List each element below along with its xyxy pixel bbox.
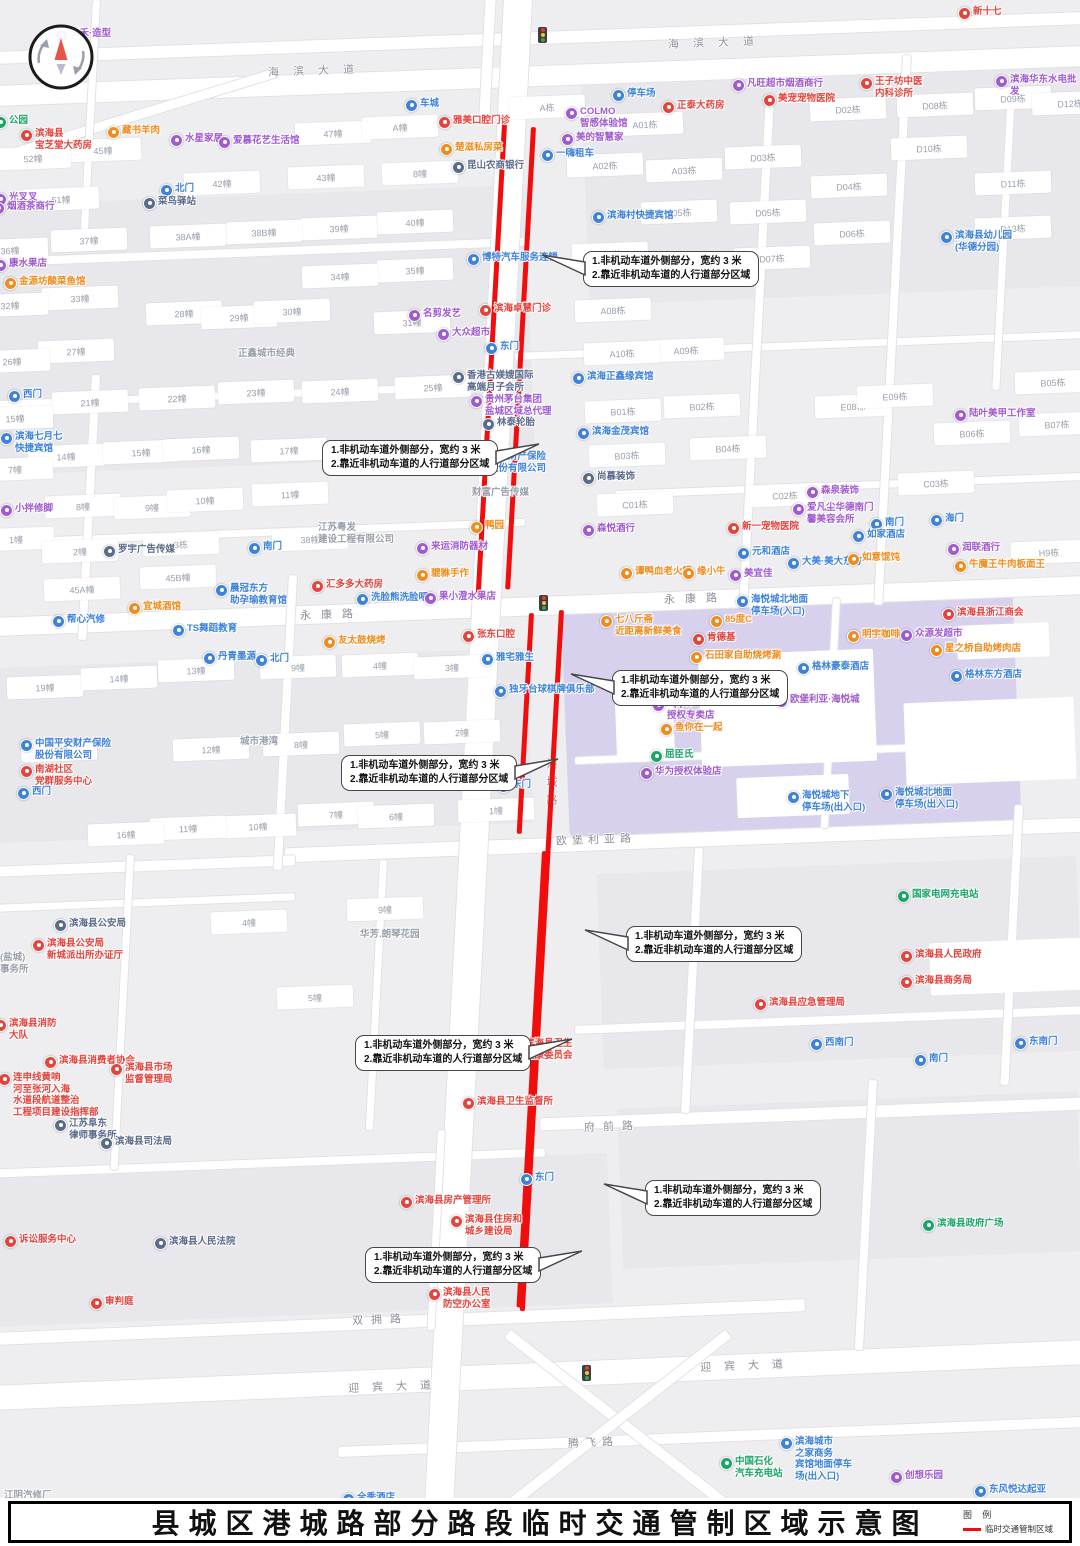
poi-label: 创想乐园 xyxy=(905,1470,943,1482)
callout-bubble: 1.非机动车道外侧部分，宽约 3 米2.靠近非机动车道的人行道部分区域 xyxy=(322,440,498,476)
poi-label: 东南门 xyxy=(1029,1036,1058,1048)
poi[interactable]: 罗宇广告传媒 xyxy=(103,544,175,558)
poi-icon-dot xyxy=(905,954,909,958)
poi-icon xyxy=(494,685,507,698)
building-label: A03栋 xyxy=(646,158,723,183)
poi-icon-dot xyxy=(857,534,861,538)
poi-icon xyxy=(128,602,141,615)
poi[interactable]: 江苏粤发 建设工程有限公司 xyxy=(318,522,394,545)
building-label: B02栋 xyxy=(664,394,741,419)
poi-icon xyxy=(467,253,480,266)
poi-icon-dot xyxy=(582,431,586,435)
poi[interactable]: 七八斤斋 近距离新鲜美食 xyxy=(600,614,682,637)
building-label: 6幢 xyxy=(358,804,435,829)
poi-icon xyxy=(930,644,943,657)
poi[interactable]: 森泉装饰 xyxy=(806,485,859,499)
poi[interactable]: 滨海县公安局 新城派出所办证厅 xyxy=(32,938,123,961)
poi[interactable]: 车城 xyxy=(405,98,439,112)
poi[interactable]: 水星家居 xyxy=(170,133,223,147)
legend-item-label: 临时交通管制区域 xyxy=(985,1523,1053,1535)
building-label: 45B幢 xyxy=(140,565,217,590)
poi-icon-dot xyxy=(148,201,152,205)
poi-label: 南门 xyxy=(929,1053,948,1065)
poi[interactable]: 陆叶美甲工作室 xyxy=(954,408,1036,422)
poi[interactable]: 雅宅雅生 xyxy=(481,652,534,666)
poi-icon xyxy=(437,328,450,341)
poi-icon xyxy=(950,670,963,683)
poi[interactable]: 财富广告传媒 xyxy=(472,487,529,499)
poi-icon xyxy=(852,530,865,543)
road-strip xyxy=(0,1340,1080,1410)
poi[interactable]: 海门 xyxy=(930,513,964,527)
poi[interactable]: 贵州茅台集团 盐城区域总代理 xyxy=(470,394,552,417)
poi[interactable]: 中国平安财产保险 股份有限公司 xyxy=(20,738,111,761)
poi-label: 陆叶美甲工作室 xyxy=(969,408,1036,420)
poi-icon xyxy=(170,134,183,147)
poi-icon-dot xyxy=(177,628,181,632)
poi[interactable]: 滨海县住房和 城乡建设局 xyxy=(450,1214,522,1237)
poi-icon-dot xyxy=(734,573,738,577)
poi-icon xyxy=(4,1235,17,1248)
poi-icon xyxy=(520,1173,533,1186)
poi[interactable]: 滨海县 宝芝堂大药房 xyxy=(20,128,92,151)
poi-icon xyxy=(787,791,800,804)
poi[interactable]: 明宇咖啡 xyxy=(847,629,900,643)
poi[interactable]: 滨海城市 之家商务 宾馆地面停车 场(出入口) xyxy=(780,1436,852,1482)
poi[interactable]: 滨海金茂宾馆 xyxy=(577,426,649,440)
poi[interactable]: 滨海县人民政府 xyxy=(900,949,982,963)
poi-icon-dot xyxy=(220,588,224,592)
poi-label: 香港古媄嫂国际 高端月子会所 xyxy=(467,370,534,393)
poi-label: 格林东方酒店 xyxy=(965,669,1022,681)
poi[interactable]: 香港古媄嫂国际 高端月子会所 xyxy=(452,370,534,393)
poi[interactable]: 爱凡尘华德南门 馨美容会所 xyxy=(792,502,874,525)
poi-icon xyxy=(847,630,860,643)
poi-label: 烟酒茶商行 xyxy=(7,201,55,213)
building-label: 35幢 xyxy=(377,258,454,283)
poi-icon-dot xyxy=(811,490,815,494)
poi[interactable]: 公园 xyxy=(0,115,28,129)
poi-icon xyxy=(780,1437,793,1450)
poi-icon-dot xyxy=(175,138,179,142)
poi-icon-dot xyxy=(927,1223,931,1227)
poi[interactable]: 鸭园 xyxy=(470,520,504,534)
poi[interactable]: 屈臣氏 xyxy=(650,749,694,763)
poi-icon xyxy=(482,418,495,431)
poi-label: 爱慕花艺生活馆 xyxy=(233,135,300,147)
callout-line2: 2.靠近非机动车道的人行道部分区域 xyxy=(374,1265,532,1279)
building-label: 8幢 xyxy=(45,494,122,519)
poi[interactable]: 金源坊酸菜鱼馆 xyxy=(4,276,86,290)
poi-label: 东风悦达起亚 xyxy=(989,1484,1046,1496)
poi-icon xyxy=(720,1457,733,1470)
poi-icon-dot xyxy=(797,507,801,511)
poi[interactable]: 貔貅手作 xyxy=(416,568,469,582)
poi[interactable]: 滨海华东水电批发 xyxy=(995,74,1080,97)
poi-label: 貔貅手作 xyxy=(431,568,469,580)
poi-icon xyxy=(143,197,156,210)
poi-label: 滨海县卫生监督所 xyxy=(477,1096,553,1108)
poi-icon-dot xyxy=(742,551,746,555)
poi-icon xyxy=(612,89,625,102)
poi[interactable]: 诉讼服务中心 xyxy=(4,1234,76,1248)
poi[interactable]: 烟酒茶商行 xyxy=(0,201,55,215)
poi-icon-dot xyxy=(0,206,1,210)
building-label: 17幢 xyxy=(251,438,328,463)
building-label: 3幢 xyxy=(414,655,491,680)
poi[interactable]: 爱慕花艺生活馆 xyxy=(218,135,300,149)
road-name-label: 腾飞路 xyxy=(568,1433,620,1451)
poi-icon xyxy=(462,630,475,643)
poi-label: 鸭园 xyxy=(485,520,504,532)
poi[interactable]: 华为授权体验店 xyxy=(640,766,722,780)
poi[interactable]: 正泰大药房 xyxy=(662,100,725,114)
poi-label: 东门 xyxy=(535,1172,554,1184)
road-strip xyxy=(0,893,295,912)
poi-icon-dot xyxy=(785,1441,789,1445)
poi[interactable]: 大众超市 xyxy=(437,327,490,341)
poi-icon xyxy=(218,136,231,149)
poi[interactable]: 滨海七月七 快捷宾馆 xyxy=(0,431,63,454)
building-label: D03栋 xyxy=(725,145,802,170)
poi[interactable]: 肯德基 xyxy=(692,632,736,646)
callout-line1: 1.非机动车道外侧部分，宽约 3 米 xyxy=(621,674,779,688)
poi[interactable]: 如意馄饨 xyxy=(847,552,900,566)
poi-label: 金源坊酸菜鱼馆 xyxy=(19,276,86,288)
poi-icon-dot xyxy=(328,640,332,644)
poi-icon xyxy=(600,615,613,628)
poi-icon-dot xyxy=(22,791,26,795)
poi[interactable]: (盐城) 事务所 xyxy=(0,952,29,975)
poi[interactable]: 昆山农商银行 xyxy=(452,160,524,174)
poi-label: 如家酒店 xyxy=(867,529,905,541)
poi[interactable]: 国家电网充电站 xyxy=(897,889,979,903)
poi[interactable]: 东门 xyxy=(520,1172,554,1186)
poi[interactable]: 城市港湾 xyxy=(240,736,278,748)
building-label: A10栋 xyxy=(584,341,661,366)
poi[interactable]: 张东口腔 xyxy=(462,629,515,643)
poi-icon xyxy=(736,595,749,608)
building-label: 7幢 xyxy=(0,457,53,482)
poi[interactable]: 如家酒店 xyxy=(852,529,905,543)
poi-icon xyxy=(0,432,13,445)
poi[interactable]: 牛魔王牛肉板面王 xyxy=(954,559,1045,573)
poi-icon xyxy=(900,976,913,989)
poi[interactable]: 南门 xyxy=(248,541,282,555)
poi[interactable]: 滨海县司法局 xyxy=(100,1136,172,1150)
poi-icon xyxy=(323,636,336,649)
building-label: 47幢 xyxy=(295,121,372,146)
poi-icon-dot xyxy=(902,894,906,898)
poi[interactable]: 滨海县幼儿园 (华德分园) xyxy=(940,230,1012,253)
poi-icon-dot xyxy=(905,980,909,984)
building-label: 38B幢 xyxy=(226,220,303,245)
callout-tail xyxy=(495,443,541,469)
poi[interactable]: 润联酒行 xyxy=(947,542,1000,556)
poi[interactable]: 西南门 xyxy=(810,1037,854,1051)
poi[interactable]: 东门 xyxy=(485,341,519,355)
poi-icon xyxy=(582,524,595,537)
poi[interactable]: 美的智慧家 xyxy=(561,132,624,146)
poi-icon xyxy=(470,395,483,408)
poi[interactable]: 南门 xyxy=(914,1053,948,1067)
poi-icon xyxy=(890,1471,903,1484)
poi-icon-dot xyxy=(768,98,772,102)
poi[interactable]: 雅美口腔门诊 xyxy=(438,115,510,129)
poi-icon xyxy=(20,129,33,142)
poi-icon-dot xyxy=(223,140,227,144)
poi-icon-dot xyxy=(875,522,879,526)
poi[interactable]: 滨海县应急管理局 xyxy=(754,997,845,1011)
poi-icon xyxy=(787,557,800,570)
poi-icon xyxy=(103,545,116,558)
building-label: 10幢 xyxy=(167,488,244,513)
poi[interactable]: 众源发超市 xyxy=(900,628,963,642)
building-label: B04栋 xyxy=(690,436,767,461)
poi[interactable]: 审判庭 xyxy=(90,1296,134,1310)
poi[interactable]: 滨海村快捷宾馆 xyxy=(592,210,674,224)
callout-line1: 1.非机动车道外侧部分，宽约 3 米 xyxy=(350,759,508,773)
poi[interactable]: 新一宠物医院 xyxy=(727,521,799,535)
callout-line1: 1.非机动车道外侧部分，宽约 3 米 xyxy=(331,444,489,458)
poi[interactable]: 滨海县人民法院 xyxy=(154,1236,236,1250)
poi[interactable]: 格林东方酒店 xyxy=(950,669,1022,683)
poi-icon xyxy=(727,522,740,535)
poi-label: 滨海县消防 大队 xyxy=(9,1018,57,1041)
poi-icon-dot xyxy=(25,743,29,747)
poi-icon-dot xyxy=(955,674,959,678)
poi-label: 滨海县市场 监督管理局 xyxy=(125,1062,173,1085)
poi-icon-dot xyxy=(852,634,856,638)
poi[interactable]: 宜城酒馆 xyxy=(128,601,181,615)
poi-label: 西南门 xyxy=(825,1037,854,1049)
poi-label: 北门 xyxy=(175,183,194,195)
poi-icon xyxy=(416,569,429,582)
poi[interactable]: 楚滋私房菜 xyxy=(440,142,503,156)
poi[interactable]: 滨海县浙江商会 xyxy=(942,607,1024,621)
building-label: 24幢 xyxy=(302,379,379,404)
poi-icon-dot xyxy=(25,769,29,773)
poi[interactable]: 小拌修脚 xyxy=(0,503,53,517)
poi-icon-dot xyxy=(457,165,461,169)
poi[interactable]: 正鑫城市经典 xyxy=(238,348,295,360)
callout-tail xyxy=(569,673,615,699)
poi[interactable]: 滨海卓慧门诊 xyxy=(479,303,551,317)
poi-icon-dot xyxy=(95,1301,99,1305)
road-name-label: 双拥路 xyxy=(352,1310,410,1328)
poi-icon xyxy=(763,94,776,107)
poi-icon xyxy=(954,560,967,573)
poi-icon-dot xyxy=(487,422,491,426)
poi[interactable]: 汇多多大药房 xyxy=(311,579,383,593)
poi-label: 中国石化 汽车充电站 xyxy=(735,1456,783,1479)
poi-icon-dot xyxy=(947,612,951,616)
poi-icon-dot xyxy=(49,1060,53,1064)
poi[interactable]: 友太鼓烧烤 xyxy=(323,635,386,649)
poi-icon-dot xyxy=(697,637,701,641)
poi-icon-dot xyxy=(566,137,570,141)
building-label: A幢 xyxy=(362,115,439,140)
legend: 图 例 临时交通管制区域 xyxy=(963,1508,1053,1535)
poi[interactable]: 创想乐园 xyxy=(890,1470,943,1484)
poi-icon xyxy=(620,567,633,580)
poi-icon-dot xyxy=(0,1023,3,1027)
poi[interactable]: 停车场 xyxy=(612,88,656,102)
poi-icon xyxy=(940,231,953,244)
poi[interactable]: 美宜佳 xyxy=(729,568,773,582)
poi[interactable]: 洗脸熊洗脸吧 xyxy=(356,592,428,606)
building-label: B05栋 xyxy=(1015,370,1080,395)
poi[interactable]: 星之桥自助烤肉店 xyxy=(930,643,1021,657)
poi-icon xyxy=(428,1288,441,1301)
poi[interactable]: 滨海县政府广场 xyxy=(922,1218,1004,1232)
poi-icon xyxy=(52,615,65,628)
poi[interactable]: 北门 xyxy=(255,653,289,667)
building-label: D04栋 xyxy=(811,174,888,199)
poi[interactable]: 滨海县商务局 xyxy=(900,975,972,989)
callout-bubble: 1.非机动车道外侧部分，宽约 3 米2.靠近非机动车道的人行道部分区域 xyxy=(365,1247,541,1283)
poi-label: 友太鼓烧烤 xyxy=(338,635,386,647)
traffic-light-icon xyxy=(582,1365,591,1381)
poi[interactable]: 滨海县房产管理所 xyxy=(400,1195,491,1209)
poi[interactable]: 海悦城北地面 停车场(出入口) xyxy=(880,787,958,810)
legend-red-line-swatch xyxy=(963,1528,981,1531)
poi[interactable]: 凡旺超市烟酒商行 xyxy=(732,78,823,92)
building-label: C01栋 xyxy=(597,492,674,517)
poi-label: 诉讼服务中心 xyxy=(19,1234,76,1246)
poi[interactable]: 海悦城地下 停车场(出入口) xyxy=(787,790,865,813)
poi[interactable]: 美宠宠物医院 xyxy=(763,93,835,107)
poi[interactable]: 滨海县消防 大队 xyxy=(0,1018,57,1041)
poi-label: 海悦城地下 停车场(出入口) xyxy=(802,790,865,813)
poi-icon-dot xyxy=(605,619,609,623)
poi[interactable]: 丹青墨源 xyxy=(203,651,256,665)
poi-label: 江苏粤发 建设工程有限公司 xyxy=(318,522,394,545)
building-label: 14幢 xyxy=(81,666,158,691)
poi-label: 名剪发艺 xyxy=(423,308,461,320)
poi-label: 北门 xyxy=(270,653,289,665)
poi-label: 贵州茅台集团 盐城区域总代理 xyxy=(485,394,552,417)
poi[interactable]: 东南门 xyxy=(1014,1036,1058,1050)
poi[interactable]: 来运消防器材 xyxy=(416,541,488,555)
poi-label: 滨海县幼儿园 (华德分园) xyxy=(955,230,1012,253)
poi-icon-dot xyxy=(499,689,503,693)
poi[interactable]: 滨海县市场 监督管理局 xyxy=(110,1062,173,1085)
poi-icon-dot xyxy=(59,923,63,927)
poi[interactable]: TS舞蹈教育 xyxy=(172,623,237,637)
poi[interactable]: 名剪发艺 xyxy=(408,308,461,322)
callout-line2: 2.靠近非机动车道的人行道部分区域 xyxy=(364,1053,522,1067)
poi-label: 西门 xyxy=(32,786,51,798)
road-name-label: 欧堡利亚路 xyxy=(556,829,637,848)
poi[interactable]: COLMO 智感体验馆 xyxy=(565,106,628,129)
poi-icon xyxy=(462,1097,475,1110)
poi-icon xyxy=(8,390,21,403)
poi-icon-dot xyxy=(445,147,449,151)
poi[interactable]: 石田家自助烧烤涮 xyxy=(690,650,781,664)
poi[interactable]: 西门 xyxy=(8,389,42,403)
poi[interactable]: 帮心汽修 xyxy=(52,614,105,628)
map-canvas[interactable]: 45幢52幢42幢51幢47幢A幢43幢8幢40幢39幢38B幢38A幢37幢3… xyxy=(0,0,1080,1546)
poi[interactable]: 果小澄水果店 xyxy=(424,591,496,605)
poi[interactable]: 连申线黄响 河至张河入海 水道段航道整治 工程项目建设指挥部 xyxy=(0,1072,99,1118)
poi-icon-dot xyxy=(587,476,591,480)
poi-icon-dot xyxy=(429,596,433,600)
building-label: 12幢 xyxy=(173,737,250,762)
poi-label: 海门 xyxy=(945,513,964,525)
poi-label: 滨海七月七 快捷宾馆 xyxy=(15,431,63,454)
poi-label: 丹青墨源 xyxy=(218,651,256,663)
poi[interactable]: 格林豪泰酒店 xyxy=(797,661,869,675)
poi-label: 牛魔王牛肉板面王 xyxy=(969,559,1045,571)
poi-icon xyxy=(479,304,492,317)
poi[interactable]: 尚慕装饰 xyxy=(582,471,635,485)
poi[interactable]: 中国石化 汽车充电站 xyxy=(720,1456,783,1479)
poi[interactable]: 北门 xyxy=(160,183,194,197)
poi-label: 屈臣氏 xyxy=(665,749,694,761)
poi[interactable]: 鱼你在一起 xyxy=(660,722,723,736)
poi[interactable]: 西门 xyxy=(17,786,51,800)
poi-icon xyxy=(424,592,437,605)
poi-label: 小拌修脚 xyxy=(15,503,53,515)
poi[interactable]: 菜鸟驿站 xyxy=(143,196,196,210)
poi[interactable]: 海悦城北地面 停车场(入口) xyxy=(736,594,808,617)
poi-icon xyxy=(0,202,5,215)
poi-label: 尚慕装饰 xyxy=(597,471,635,483)
poi-icon-dot xyxy=(645,771,649,775)
poi[interactable]: 南湖社区 党群服务中心 xyxy=(20,764,92,787)
poi-label: 昆山农商银行 xyxy=(467,160,524,172)
poi[interactable]: 晨冠东方 助孕瑜教育馆 xyxy=(215,583,287,606)
poi[interactable]: 林泰轮胎 xyxy=(482,417,535,431)
poi[interactable]: 王子坊中医 内科诊所 xyxy=(860,76,923,99)
building-label: 23幢 xyxy=(218,380,295,405)
poi[interactable]: 康水果店 xyxy=(0,258,47,272)
poi[interactable]: 缘小牛 xyxy=(682,566,726,580)
poi-label: 一嗨租车 xyxy=(556,148,594,160)
poi-icon xyxy=(416,542,429,555)
poi-icon-dot xyxy=(617,93,621,97)
poi[interactable]: 滨海县公安局 xyxy=(54,918,126,932)
map-title: 县城区港城路部分路段临时交通管制区域示意图 xyxy=(151,1502,928,1542)
poi-label: 新十七 xyxy=(973,6,1002,18)
poi[interactable]: 一嗨租车 xyxy=(541,148,594,162)
poi[interactable]: 滨海正鑫缘宾馆 xyxy=(572,371,654,385)
poi-icon-dot xyxy=(490,346,494,350)
building-label: D05栋 xyxy=(730,200,807,225)
building-label: B06栋 xyxy=(934,421,1011,446)
poi-label: 来运消防器材 xyxy=(431,541,488,553)
poi-icon-dot xyxy=(3,1077,7,1081)
poi-label: 海悦城北地面 停车场(入口) xyxy=(751,594,808,617)
poi[interactable]: 新十七 xyxy=(958,6,1002,20)
poi[interactable]: 森悦酒行 xyxy=(582,523,635,537)
poi[interactable]: 藏书羊肉 xyxy=(107,125,160,139)
poi[interactable]: 东风悦达起亚 xyxy=(974,1484,1046,1498)
poi-icon xyxy=(0,116,7,129)
poi-label: 滨海县司法局 xyxy=(115,1136,172,1148)
poi[interactable]: 滨海县人民 防空办公室 xyxy=(428,1287,491,1310)
poi[interactable]: 元和酒店 xyxy=(737,546,790,560)
poi[interactable]: 华芳.朗琴花园 xyxy=(360,929,420,941)
poi-icon xyxy=(400,1196,413,1209)
poi[interactable]: 滨海县卫生监督所 xyxy=(462,1096,553,1110)
poi-icon-dot xyxy=(935,518,939,522)
building-label: 4幢 xyxy=(342,653,419,678)
traffic-light-icon xyxy=(539,595,548,611)
annotation-callout: 1.非机动车道外侧部分，宽约 3 米2.靠近非机动车道的人行道部分区域 xyxy=(626,926,802,962)
poi-icon xyxy=(0,1019,7,1032)
